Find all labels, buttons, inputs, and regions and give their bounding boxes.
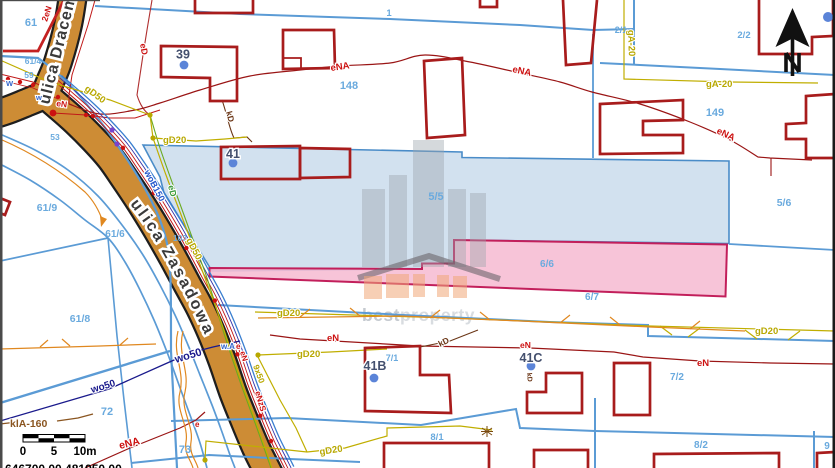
svg-text:eD: eD [138, 43, 150, 57]
svg-text:gD20: gD20 [163, 135, 186, 146]
svg-text:0: 0 [20, 446, 26, 458]
svg-text:148: 148 [340, 80, 358, 92]
svg-text:41B: 41B [364, 359, 387, 373]
svg-text:2/2: 2/2 [737, 30, 750, 41]
svg-text:8/1: 8/1 [430, 432, 444, 443]
svg-text:61/6: 61/6 [105, 229, 125, 240]
svg-text:61/4: 61/4 [25, 56, 42, 66]
svg-text:61/9: 61/9 [37, 202, 58, 214]
svg-text:10m: 10m [73, 446, 96, 458]
svg-text:e: e [236, 342, 241, 351]
svg-text:59: 59 [24, 70, 34, 80]
svg-text:1: 1 [386, 8, 392, 19]
svg-text:5/6: 5/6 [777, 197, 792, 209]
svg-text:kD: kD [525, 373, 533, 383]
svg-text:gA-20: gA-20 [706, 79, 732, 90]
svg-text:eN: eN [56, 98, 68, 109]
svg-text:41: 41 [226, 147, 240, 161]
svg-text:39: 39 [176, 48, 190, 62]
svg-text:9: 9 [824, 441, 830, 452]
svg-text:7/1: 7/1 [386, 353, 399, 363]
svg-text:eN: eN [520, 340, 531, 350]
svg-text:w: w [35, 93, 42, 102]
svg-text:646700.00 481950.00: 646700.00 481950.00 [5, 462, 122, 468]
svg-text:72: 72 [101, 406, 113, 418]
svg-text:5: 5 [51, 446, 58, 458]
svg-text:w.A: w.A [220, 342, 235, 351]
svg-text:6/7: 6/7 [585, 292, 599, 303]
svg-text:eN: eN [697, 358, 709, 369]
svg-text:53: 53 [50, 132, 60, 142]
svg-text:41C: 41C [520, 351, 543, 365]
svg-text:149: 149 [706, 107, 724, 119]
svg-text:gD20: gD20 [277, 308, 300, 319]
svg-text:6/6: 6/6 [540, 259, 554, 270]
svg-text:eN: eN [327, 333, 339, 344]
svg-text:e: e [195, 420, 200, 429]
svg-text:61: 61 [25, 17, 37, 29]
svg-text:gA-20: gA-20 [625, 30, 637, 57]
svg-text:73: 73 [179, 444, 191, 456]
svg-text:gD20: gD20 [297, 349, 320, 360]
svg-text:7/2: 7/2 [670, 372, 684, 383]
svg-text:W: W [6, 79, 14, 88]
svg-text:8/2: 8/2 [694, 440, 708, 451]
svg-text:61/8: 61/8 [70, 313, 91, 325]
svg-text:5/5: 5/5 [428, 191, 443, 203]
svg-text:klA-160: klA-160 [10, 418, 48, 430]
svg-text:gD20: gD20 [755, 326, 778, 337]
